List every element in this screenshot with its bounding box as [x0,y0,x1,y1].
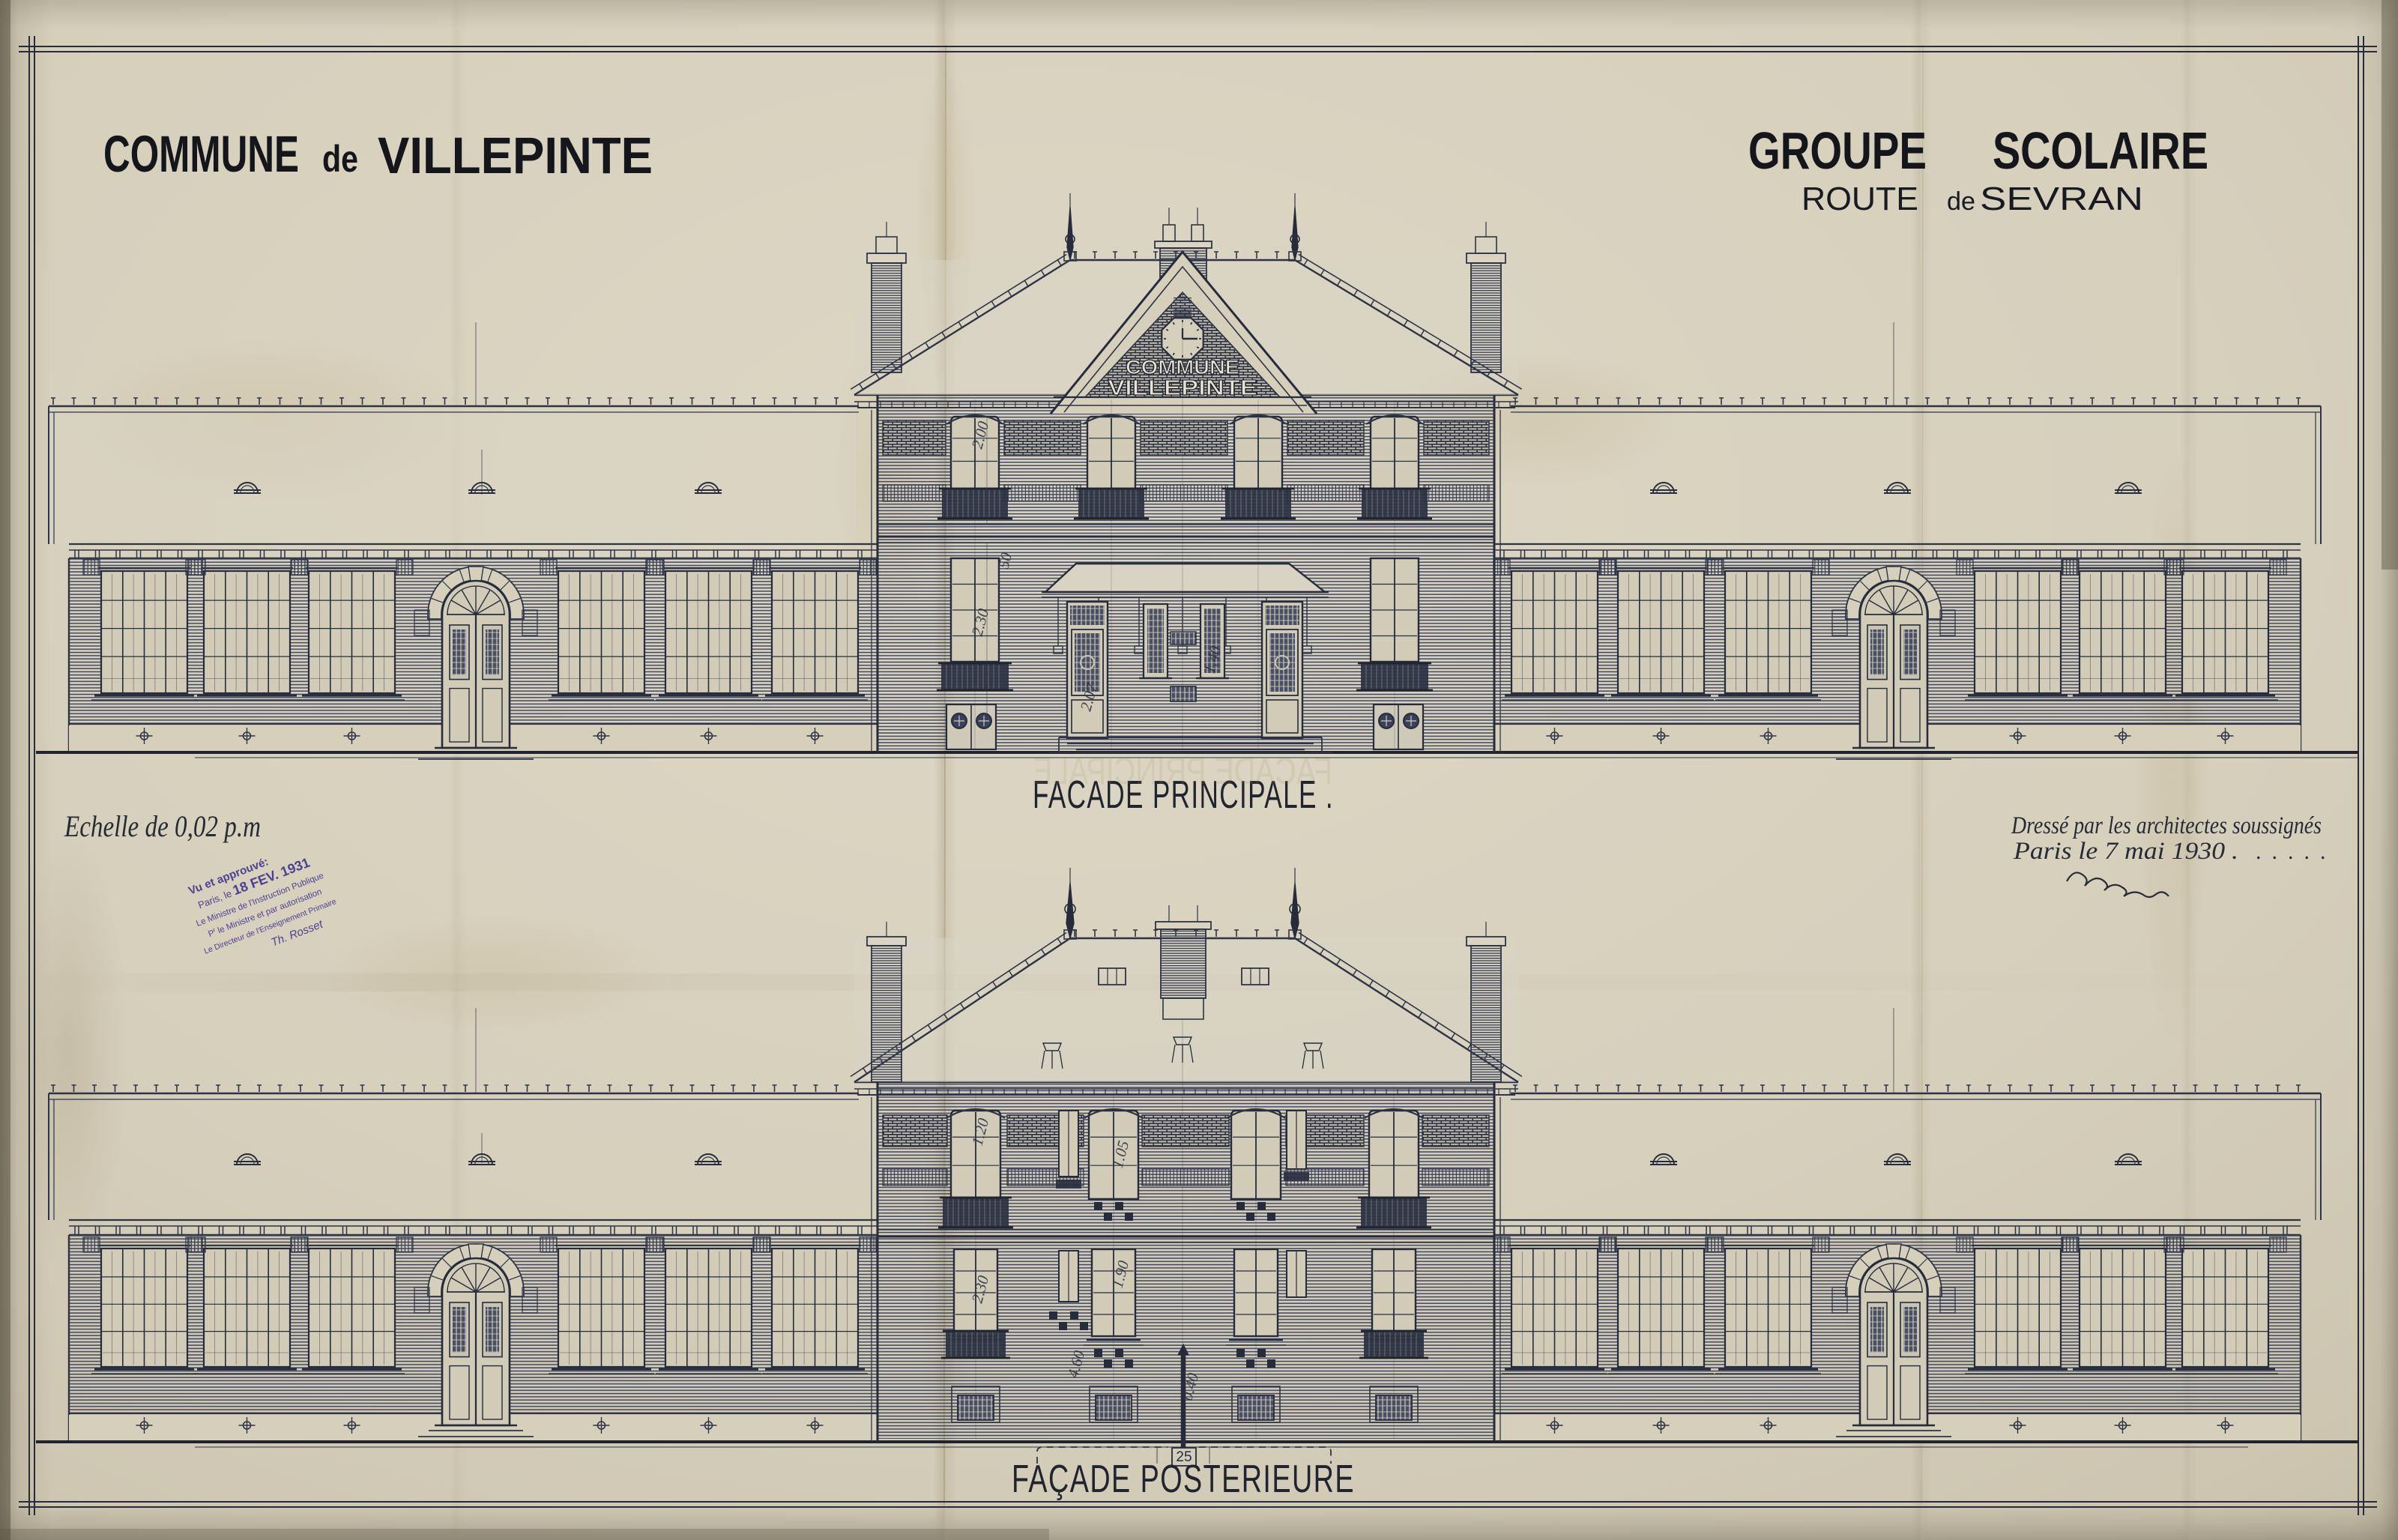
svg-text:FAÇADE POSTERIEURE: FAÇADE POSTERIEURE [1012,1458,1355,1501]
svg-text:SCOLAIRE: SCOLAIRE [1993,121,2208,180]
svg-text:VILLEPINTE: VILLEPINTE [378,127,653,184]
svg-text:de: de [322,138,358,180]
svg-text:de: de [1947,187,1975,216]
svg-text:Paris le 7 mai 1930 .: Paris le 7 mai 1930 . [2013,838,2238,865]
svg-text:FACADE PRINCIPALE: FACADE PRINCIPALE [1033,750,1332,792]
svg-text:SEVRAN: SEVRAN [1980,181,2143,217]
svg-text:ROUTE: ROUTE [1801,181,1918,217]
svg-text:COMMUNE: COMMUNE [103,125,299,183]
svg-text:Echelle de 0,02 p.m: Echelle de 0,02 p.m [64,809,261,843]
svg-text:.....: ..... [2256,839,2337,864]
svg-text:Dressé par les architectes sou: Dressé par les architectes soussignés [2011,812,2322,839]
svg-text:GROUPE: GROUPE [1748,121,1927,180]
